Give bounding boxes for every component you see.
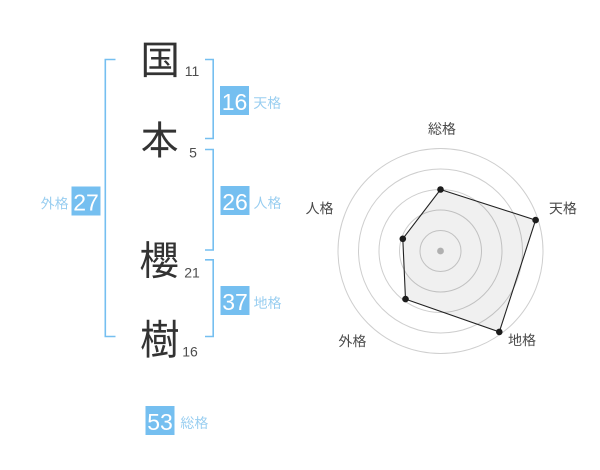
svg-text:53: 53 — [147, 409, 173, 435]
svg-text:26: 26 — [222, 189, 248, 215]
svg-text:16: 16 — [182, 343, 198, 359]
svg-text:5: 5 — [189, 145, 197, 161]
svg-text:16: 16 — [222, 89, 248, 115]
svg-text:27: 27 — [73, 190, 99, 216]
svg-text:11: 11 — [185, 63, 200, 79]
svg-text:37: 37 — [222, 289, 248, 315]
svg-text:21: 21 — [184, 265, 200, 281]
